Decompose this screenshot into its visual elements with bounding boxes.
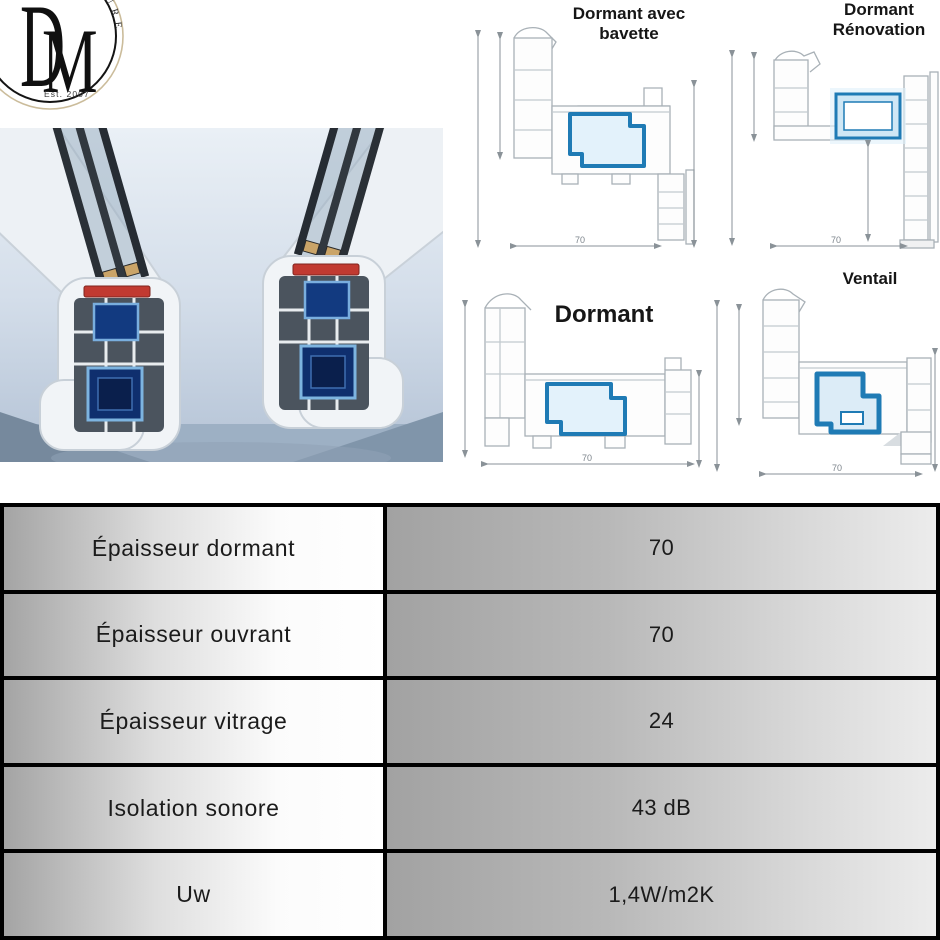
spec-row-label-epaisseur-vitrage: Épaisseur vitrage — [4, 680, 383, 763]
technical-drawing-dormant: 70 — [455, 282, 703, 482]
spec-row-value-epaisseur-dormant: 70 — [387, 507, 936, 590]
spec-row-label-uw: Uw — [4, 853, 383, 936]
technical-drawing-dormant-avec-bavette: 70 — [462, 22, 700, 252]
gasket-red-strip — [293, 264, 359, 275]
dimension-label-width: 70 — [582, 453, 592, 463]
pvc-profiles-photo — [0, 128, 443, 462]
profile-line-art — [774, 51, 938, 248]
logo-established-text: Est. 2007 — [44, 89, 90, 99]
spec-row-value-isolation-sonore: 43 dB — [387, 767, 936, 850]
gasket-red-strip — [84, 286, 150, 297]
spec-table: Épaisseur dormant 70 Épaisseur ouvrant 7… — [0, 503, 940, 940]
spec-row-label-epaisseur-dormant: Épaisseur dormant — [4, 507, 383, 590]
spec-row-label-isolation-sonore: Isolation sonore — [4, 767, 383, 850]
brand-logo: ETURES D M Est. 2007 — [0, 0, 150, 125]
dimension-label-width: 70 — [831, 235, 841, 245]
spec-row-value-uw: 1,4W/m2K — [387, 853, 936, 936]
steel-reinforcement-upper — [305, 282, 349, 318]
technical-drawing-ventail: 70 — [705, 282, 940, 482]
spec-row-value-epaisseur-ouvrant: 70 — [387, 594, 936, 677]
dimension-label-width: 70 — [832, 463, 842, 473]
dimension-lines — [732, 54, 904, 246]
spec-row-value-epaisseur-vitrage: 24 — [387, 680, 936, 763]
spec-row-label-epaisseur-ouvrant: Épaisseur ouvrant — [4, 594, 383, 677]
steel-core — [98, 378, 132, 410]
technical-drawing-dormant-renovation: 70 — [718, 42, 940, 254]
drawing-title-dormant-renovation: Dormant Rénovation — [818, 0, 940, 41]
reinforcement-notch — [841, 412, 863, 424]
steel-reinforcement-core — [844, 102, 892, 130]
product-sheet-page: ETURES D M Est. 2007 — [0, 0, 940, 940]
steel-core — [311, 356, 345, 388]
steel-reinforcement-upper — [94, 304, 138, 340]
dimension-label-width: 70 — [575, 235, 585, 245]
